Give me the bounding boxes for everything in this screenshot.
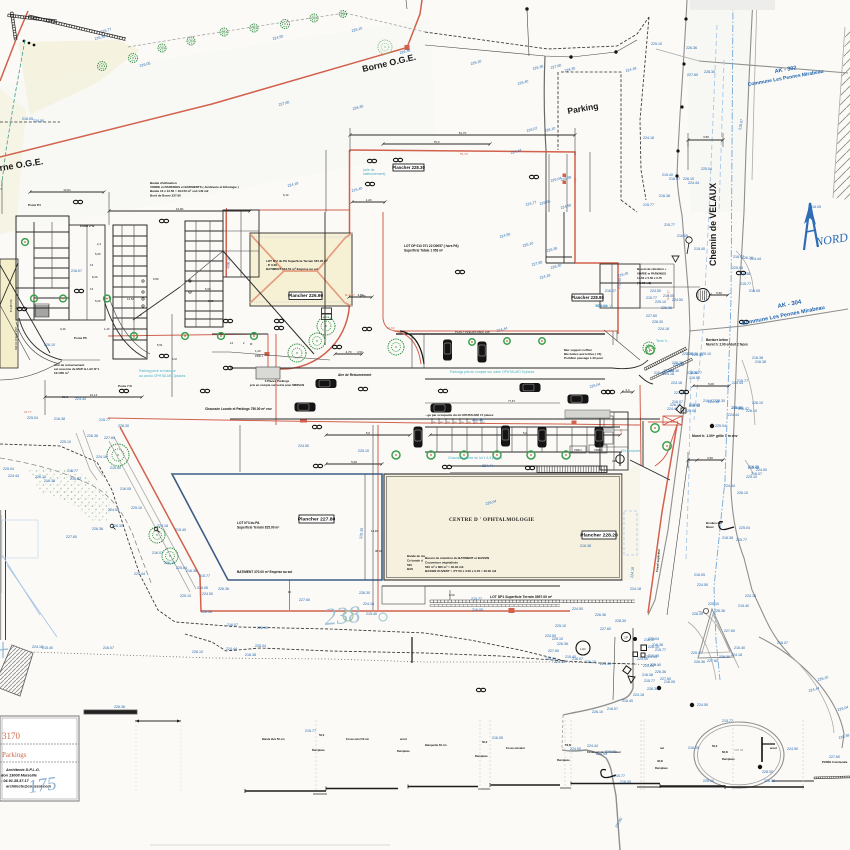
svg-text:238: 238 — [323, 602, 361, 631]
svg-text:216.38: 216.38 — [739, 272, 750, 276]
svg-text:Remplace: Remplace — [722, 757, 735, 761]
svg-text:226.10: 226.10 — [192, 650, 203, 654]
svg-text:224.18: 224.18 — [745, 594, 756, 598]
svg-text:216.07: 216.07 — [777, 641, 788, 645]
svg-text:216.05: 216.05 — [689, 376, 700, 380]
svg-text:Poste P4: Poste P4 — [28, 203, 41, 207]
svg-text:224.18: 224.18 — [157, 524, 168, 528]
svg-text:215.77: 215.77 — [691, 371, 702, 375]
svg-text:225.04: 225.04 — [732, 266, 743, 270]
svg-text:227.60: 227.60 — [687, 73, 698, 77]
svg-text:226.36: 226.36 — [595, 613, 606, 617]
svg-text:Banquette 50 cm: Banquette 50 cm — [425, 743, 447, 747]
svg-text:215.77: 215.77 — [99, 418, 110, 422]
svg-text:215.77: 215.77 — [643, 203, 654, 207]
svg-text:Remplace: Remplace — [312, 748, 325, 752]
svg-text:216.05: 216.05 — [810, 205, 821, 209]
svg-text:Remplace: Remplace — [557, 758, 570, 762]
svg-text:224.44: 224.44 — [134, 572, 145, 576]
svg-text:227.60: 227.60 — [646, 314, 657, 318]
svg-text:BASSIN OUVERT = 3*7.50 x 3.00: BASSIN OUVERT = 3*7.50 x 3.00 x 0.45 = 4… — [425, 569, 497, 573]
svg-text:VOIRIE et PARKINGS: VOIRIE et PARKINGS — [637, 272, 666, 276]
svg-text:Plancher 227.80: Plancher 227.80 — [298, 516, 336, 522]
svg-text:227.60: 227.60 — [724, 629, 735, 633]
svg-text:216.05: 216.05 — [120, 487, 131, 491]
svg-text:500 m² x 800 m³ = 46.00 m3: 500 m² x 800 m³ = 46.00 m3 — [425, 565, 464, 569]
svg-text:216.05: 216.05 — [694, 573, 705, 577]
svg-text:227.60: 227.60 — [600, 627, 611, 631]
svg-text:224.18: 224.18 — [363, 602, 374, 606]
svg-text:224.18: 224.18 — [643, 136, 654, 140]
svg-text:Architecte D.P.L.G.: Architecte D.P.L.G. — [5, 768, 40, 772]
svg-text:Plancher 228.30: Plancher 228.30 — [392, 165, 425, 170]
svg-text:224.50: 224.50 — [697, 583, 708, 587]
svg-text:46,N: 46,N — [657, 759, 663, 763]
svg-text:net: net — [660, 746, 664, 750]
svg-text:51.70: 51.70 — [460, 152, 468, 156]
svg-text:228.30: 228.30 — [704, 70, 715, 74]
svg-text:Superficie Totale 1 053 m²: Superficie Totale 1 053 m² — [404, 248, 443, 252]
svg-text:...ge par occupants du lot OPH: ...ge par occupants du lot OPHTALMO 17 p… — [425, 413, 494, 417]
svg-text:175: 175 — [27, 773, 58, 798]
svg-text:226.10: 226.10 — [596, 304, 607, 308]
svg-text:Portillon passage 1.40 pour: Portillon passage 1.40 pour — [564, 356, 604, 360]
svg-text:Terre V...: Terre V... — [656, 339, 669, 343]
svg-text:216.38: 216.38 — [689, 404, 700, 408]
svg-text:215.77: 215.77 — [471, 597, 482, 601]
svg-text:226.10: 226.10 — [44, 343, 55, 347]
svg-text:Remplace: Remplace — [655, 766, 668, 770]
svg-text:225.04: 225.04 — [685, 409, 696, 413]
svg-text:R+0.67: R+0.67 — [345, 293, 355, 297]
svg-text:224.44: 224.44 — [8, 474, 19, 478]
svg-text:52,0: 52,0 — [319, 733, 325, 737]
svg-text:225.10: 225.10 — [60, 440, 71, 444]
svg-text:Poste P6: Poste P6 — [74, 336, 87, 340]
svg-text:3,50: 3,50 — [703, 135, 709, 139]
svg-text:226.36: 226.36 — [764, 779, 775, 783]
svg-text:PMR 2: PMR 2 — [574, 449, 582, 452]
svg-text:226.36: 226.36 — [661, 306, 672, 310]
svg-text:PMR 1: PMR 1 — [594, 449, 602, 452]
svg-text:225.10: 225.10 — [651, 42, 662, 46]
svg-text:215.77: 215.77 — [614, 774, 625, 778]
svg-text:228.30: 228.30 — [719, 655, 730, 659]
svg-text:225.10: 225.10 — [552, 637, 563, 641]
svg-text:224.44: 224.44 — [587, 744, 598, 748]
svg-text:225.04: 225.04 — [255, 644, 266, 648]
svg-text:216.38: 216.38 — [580, 544, 591, 548]
svg-text:1,40: 1,40 — [539, 430, 545, 434]
svg-text:226.10: 226.10 — [752, 401, 763, 405]
svg-text:Chaussée privée du lot 1 A 3 p: Chaussée privée du lot 1 A 3 pièces — [448, 456, 502, 460]
svg-text:216.07: 216.07 — [152, 551, 163, 555]
svg-text:5,00: 5,00 — [708, 382, 714, 386]
svg-text:216.05: 216.05 — [492, 736, 503, 740]
svg-text:PMR 1: PMR 1 — [255, 354, 263, 358]
svg-text:215.40: 215.40 — [175, 528, 186, 532]
svg-text:226.36: 226.36 — [655, 670, 666, 674]
svg-text:4,50: 4,50 — [360, 294, 366, 298]
svg-text:75,0: 75,0 — [434, 140, 440, 144]
svg-text:224.44: 224.44 — [482, 464, 493, 468]
svg-text:Fossé existant: Fossé existant — [506, 746, 525, 750]
svg-text:226.10: 226.10 — [257, 626, 268, 630]
svg-text:216.05: 216.05 — [620, 780, 631, 784]
svg-text:4,50: 4,50 — [357, 350, 363, 354]
svg-text:224.44: 224.44 — [750, 257, 761, 261]
svg-text:215.77: 215.77 — [664, 223, 675, 227]
svg-text:7.87: 7.87 — [573, 177, 577, 183]
svg-text:215.77: 215.77 — [644, 679, 655, 683]
svg-text:8,20: 8,20 — [92, 275, 98, 279]
svg-text:226.36: 226.36 — [557, 642, 568, 646]
svg-text:224.50: 224.50 — [108, 508, 119, 512]
svg-text:KN Bordures...: KN Bordures... — [621, 449, 643, 453]
svg-text:216.07: 216.07 — [607, 707, 618, 711]
svg-text:224.44: 224.44 — [667, 407, 678, 411]
svg-text:Parkings: Parkings — [2, 751, 27, 759]
svg-text:226.36: 226.36 — [87, 434, 98, 438]
svg-text:Ce bande d: Ce bande d — [407, 558, 423, 562]
svg-text:5,0: 5,0 — [523, 431, 528, 435]
svg-text:228.30: 228.30 — [359, 591, 370, 595]
svg-text:216.05: 216.05 — [197, 586, 208, 590]
svg-text:51.63: 51.63 — [387, 326, 395, 330]
svg-text:216.07: 216.07 — [71, 269, 82, 273]
svg-text:227.60: 227.60 — [548, 649, 559, 653]
svg-text:PLAN TOPEURS 88cm 228: PLAN TOPEURS 88cm 228 — [455, 330, 490, 334]
svg-text:216.07: 216.07 — [669, 177, 680, 181]
svg-text:Bord de Borne 227.60: Bord de Borne 227.60 — [150, 193, 181, 197]
svg-text:226.10: 226.10 — [746, 409, 757, 413]
svg-text:226.36: 226.36 — [714, 609, 725, 613]
svg-text:225.04: 225.04 — [648, 637, 659, 641]
svg-text:BATIMENT 134.51 m² Emprise au: BATIMENT 134.51 m² Emprise au sol — [266, 267, 318, 271]
svg-text:227.60: 227.60 — [66, 535, 77, 539]
svg-text:4,70: 4,70 — [346, 350, 352, 354]
svg-text:50,0: 50,0 — [712, 744, 718, 748]
svg-text:224.50: 224.50 — [697, 703, 708, 707]
svg-text:224.44: 224.44 — [75, 397, 86, 401]
svg-text:225.10: 225.10 — [746, 475, 757, 479]
svg-text:17.01: 17.01 — [226, 261, 230, 269]
svg-text:14.50 x 5.50 x 0.75: 14.50 x 5.50 x 0.75 — [637, 276, 662, 280]
svg-text:225.04: 225.04 — [3, 467, 14, 471]
svg-text:224.50: 224.50 — [756, 468, 767, 472]
svg-text:50,0: 50,0 — [482, 740, 488, 744]
svg-text:5,0: 5,0 — [366, 431, 371, 435]
svg-text:216.07: 216.07 — [103, 646, 114, 650]
svg-text:216.38: 216.38 — [652, 643, 663, 647]
svg-text:216.38: 216.38 — [642, 673, 653, 677]
svg-text:5,50: 5,50 — [716, 291, 722, 295]
svg-text:216.38: 216.38 — [44, 479, 55, 483]
svg-text:216.07: 216.07 — [605, 289, 616, 293]
svg-text:215.77: 215.77 — [655, 648, 666, 652]
svg-text:224.50: 224.50 — [672, 298, 683, 302]
svg-text:228.30: 228.30 — [118, 424, 129, 428]
svg-text:Plancher 228.80: Plancher 228.80 — [571, 295, 604, 300]
svg-text:215.40: 215.40 — [694, 247, 705, 251]
svg-text:215.77: 215.77 — [736, 538, 747, 542]
svg-text:LU1: LU1 — [580, 647, 586, 651]
svg-text:216.07: 216.07 — [70, 477, 81, 481]
svg-text:226.36: 226.36 — [114, 705, 125, 709]
svg-text:224.44: 224.44 — [724, 484, 735, 488]
svg-text:accot: accot — [770, 746, 777, 750]
svg-text:Parking privé en banque: Parking privé en banque — [139, 369, 176, 373]
svg-text:225.10: 225.10 — [555, 624, 566, 628]
svg-text:13: 13 — [90, 263, 94, 267]
svg-text:224.18: 224.18 — [731, 653, 742, 657]
svg-text:227.60: 227.60 — [104, 436, 115, 440]
svg-text:BATIMENT 370.00 m² Emprise au: BATIMENT 370.00 m² Emprise au sol — [237, 570, 292, 574]
svg-text:224.50: 224.50 — [298, 444, 309, 448]
svg-text:1,40: 1,40 — [104, 327, 110, 331]
svg-text:BAS: BAS — [407, 567, 413, 571]
svg-text:stationnement): stationnement) — [363, 172, 385, 176]
svg-text:(41.00 m3): (41.00 m3) — [637, 281, 651, 285]
svg-text:3,4: 3,4 — [625, 388, 630, 392]
svg-text:225.04: 225.04 — [27, 416, 38, 420]
svg-text:225.10: 225.10 — [700, 352, 711, 356]
svg-text:Parkings pris en compte sur vo: Parkings pris en compte sur voirie OPHTA… — [450, 370, 535, 374]
svg-text:R+4.37: R+4.37 — [666, 290, 670, 300]
svg-text:10: 10 — [288, 590, 292, 594]
svg-text:pris en compte sur voirie pour: pris en compte sur voirie pour MINIVAN — [250, 383, 304, 387]
svg-text:15.77: 15.77 — [24, 410, 32, 414]
svg-text:226.36: 226.36 — [92, 527, 103, 531]
svg-text:216.38: 216.38 — [605, 750, 616, 754]
svg-text:accot: accot — [400, 737, 407, 741]
svg-text:2,4: 2,4 — [97, 242, 101, 246]
svg-text:225.10: 225.10 — [655, 300, 666, 304]
svg-text:LOT DP1 Superficie Terrain 3: LOT DP1 Superficie Terrain 3597.00 m² — [490, 595, 553, 599]
svg-text:5,00: 5,00 — [95, 252, 101, 256]
svg-text:225.10: 225.10 — [131, 506, 142, 510]
svg-text:14: 14 — [230, 341, 234, 345]
svg-text:13: 13 — [90, 287, 94, 291]
svg-text:224.44: 224.44 — [226, 647, 237, 651]
svg-text:224.18: 224.18 — [671, 381, 682, 385]
svg-text:215.77: 215.77 — [305, 729, 316, 733]
svg-text:Bande de rés: Bande de rés — [407, 554, 426, 558]
svg-text:227.60: 227.60 — [299, 598, 310, 602]
svg-text:5,00: 5,00 — [205, 287, 211, 291]
svg-text:215.40: 215.40 — [42, 646, 53, 650]
svg-text:215.40: 215.40 — [622, 699, 633, 703]
svg-text:224.50: 224.50 — [33, 119, 44, 123]
svg-text:Plancher 228.20: Plancher 228.20 — [580, 532, 618, 538]
svg-text:1P: 1P — [624, 636, 628, 640]
svg-text:au condo OPHTALMO 2places: au condo OPHTALMO 2places — [139, 374, 186, 378]
svg-text:CENTRE D ' OPHTALMOLOGIE: CENTRE D ' OPHTALMOLOGIE — [449, 517, 535, 523]
svg-text:36,32: 36,32 — [375, 549, 382, 553]
svg-text:216.38: 216.38 — [659, 194, 670, 198]
svg-text:226.36: 226.36 — [218, 587, 229, 591]
svg-text:226.10: 226.10 — [164, 561, 175, 565]
svg-text:227.60: 227.60 — [674, 391, 685, 395]
svg-text:Bassin de rétention du BATIME: Bassin de rétention du BATIMENT et BASSI… — [425, 556, 489, 560]
svg-text:216.05: 216.05 — [472, 608, 483, 612]
svg-text:228.30: 228.30 — [647, 687, 658, 691]
svg-text:Poste 2 %: Poste 2 % — [80, 224, 95, 228]
svg-text:226.36: 226.36 — [201, 610, 212, 614]
svg-text:224.18: 224.18 — [658, 327, 669, 331]
svg-text:215.40: 215.40 — [734, 646, 745, 650]
svg-text:500: 500 — [407, 563, 412, 567]
svg-text:Bande élév 50 cm: Bande élév 50 cm — [262, 737, 285, 741]
svg-text:21,N: 21,N — [62, 395, 68, 399]
svg-text:225.10: 225.10 — [358, 449, 369, 453]
svg-text:1,20: 1,20 — [255, 349, 261, 353]
svg-text:215.77: 215.77 — [737, 379, 748, 383]
svg-text:228.30: 228.30 — [762, 770, 773, 774]
svg-text:6,13: 6,13 — [283, 193, 289, 197]
svg-text:224.18: 224.18 — [96, 455, 107, 459]
svg-text:215.77: 215.77 — [722, 719, 733, 723]
svg-text:6,00: 6,00 — [449, 593, 455, 597]
svg-text:225.10: 225.10 — [708, 602, 719, 606]
svg-text:228.30: 228.30 — [615, 619, 626, 623]
svg-text:226.10: 226.10 — [737, 491, 748, 495]
svg-text:225.10: 225.10 — [650, 663, 661, 667]
svg-text:5,00: 5,00 — [95, 299, 101, 303]
svg-text:225.10: 225.10 — [691, 651, 702, 655]
svg-text:Muret h: 2.00 enduit 2 faces: Muret h: 2.00 enduit 2 faces — [706, 342, 748, 346]
svg-text:0,40: 0,40 — [60, 327, 66, 331]
svg-text:224.50: 224.50 — [787, 747, 798, 751]
svg-text:13,56: 13,56 — [127, 297, 134, 301]
svg-text:228.30: 228.30 — [692, 612, 703, 616]
svg-text:224.50: 224.50 — [572, 607, 583, 611]
svg-text:225.04: 225.04 — [715, 424, 726, 428]
svg-text:226.36: 226.36 — [687, 352, 698, 356]
svg-text:Chaussée Lourde et Parkings 7: Chaussée Lourde et Parkings 750.00 m² en… — [205, 407, 272, 411]
svg-text:Fossé exist 50 cm: Fossé exist 50 cm — [346, 737, 370, 741]
svg-text:226.36: 226.36 — [686, 46, 697, 50]
svg-text:227.60: 227.60 — [673, 363, 684, 367]
svg-text:224.18: 224.18 — [708, 400, 719, 404]
svg-text:Remplace: Remplace — [397, 749, 410, 753]
svg-text:13,61: 13,61 — [63, 188, 71, 192]
svg-text:8.00: 8.00 — [619, 429, 623, 435]
svg-text:215.77: 215.77 — [199, 574, 210, 578]
svg-text:5,00: 5,00 — [208, 299, 214, 303]
svg-text:226.36: 226.36 — [694, 660, 705, 664]
svg-text:1,20: 1,20 — [366, 198, 372, 202]
svg-text:225.10: 225.10 — [703, 779, 714, 783]
svg-text:3170: 3170 — [2, 731, 21, 741]
svg-text:224.18: 224.18 — [554, 660, 565, 664]
svg-text:225.10: 225.10 — [180, 594, 191, 598]
svg-text:216.05: 216.05 — [749, 289, 760, 293]
svg-text:Couverture végétalisée: Couverture végétalisée — [425, 560, 458, 564]
svg-text:6,80: 6,80 — [153, 277, 159, 281]
svg-text:224.18: 224.18 — [633, 693, 644, 697]
svg-text:216.05: 216.05 — [677, 234, 688, 238]
svg-text:3,50: 3,50 — [707, 456, 713, 460]
svg-text:215.40: 215.40 — [654, 371, 665, 375]
svg-text:5,00: 5,00 — [351, 460, 357, 464]
svg-text:226.10: 226.10 — [592, 710, 603, 714]
svg-text:Bassin de rétention +: Bassin de rétention + — [637, 267, 667, 271]
svg-text:216.07: 216.07 — [572, 657, 583, 661]
svg-text:66,N: 66,N — [722, 750, 728, 754]
svg-text:215.77: 215.77 — [740, 282, 751, 286]
svg-text:228.30: 228.30 — [112, 524, 123, 528]
svg-text:Plancher 226.90: Plancher 226.90 — [288, 293, 324, 298]
svg-text:Poste 7 N: Poste 7 N — [118, 384, 132, 388]
svg-text:224.50: 224.50 — [202, 592, 213, 596]
svg-text:Aire de Retournement: Aire de Retournement — [338, 373, 372, 377]
svg-text:215.40: 215.40 — [110, 466, 121, 470]
svg-text:51,70: 51,70 — [459, 131, 467, 135]
svg-text:227.60: 227.60 — [660, 677, 671, 681]
svg-text:21,14: 21,14 — [90, 393, 98, 397]
svg-text:227.60: 227.60 — [707, 659, 718, 663]
svg-text:Remplace: Remplace — [475, 754, 488, 758]
svg-text:: 04.91.35.37.17: : 04.91.35.37.17 — [1, 779, 30, 783]
svg-text:224.44: 224.44 — [688, 181, 699, 185]
svg-text:13,90: 13,90 — [176, 207, 184, 211]
svg-text:224.50: 224.50 — [637, 657, 648, 661]
svg-text:333 DK Châssis MSP: 333 DK Châssis MSP — [15, 327, 18, 350]
svg-text:216.05: 216.05 — [688, 746, 699, 750]
svg-text:216.05: 216.05 — [22, 117, 33, 121]
svg-text:Muret h: 1.00+ grille 1 m env: Muret h: 1.00+ grille 1 m env — [692, 434, 738, 438]
svg-text:228.30: 228.30 — [652, 320, 663, 324]
svg-text:77,67: 77,67 — [508, 399, 515, 403]
svg-text:216.38: 216.38 — [472, 418, 483, 422]
svg-text:216.38: 216.38 — [755, 360, 766, 364]
svg-text:216.38: 216.38 — [722, 536, 733, 540]
svg-text:215.40: 215.40 — [738, 604, 749, 608]
svg-text:216.38: 216.38 — [186, 569, 197, 573]
svg-text:224.18: 224.18 — [630, 587, 641, 591]
svg-text:215.40: 215.40 — [366, 612, 377, 616]
svg-text:Superficie Terrain 815.00 m²: Superficie Terrain 815.00 m² — [237, 525, 279, 529]
svg-text:5,51: 5,51 — [157, 343, 163, 347]
svg-text:10>350 m²: 10>350 m² — [54, 371, 69, 375]
svg-text:225.04: 225.04 — [739, 526, 750, 530]
svg-text:228.98: 228.98 — [734, 748, 744, 752]
svg-text:6,M: 6,M — [172, 357, 177, 361]
svg-text:14,93: 14,93 — [371, 529, 378, 533]
svg-text:224.50: 224.50 — [570, 747, 581, 751]
svg-text:Muret: Muret — [706, 525, 714, 529]
svg-text:216.07: 216.07 — [227, 623, 238, 627]
svg-text:B 3,48 CM: B 3,48 CM — [9, 300, 13, 312]
svg-text:Chemin de VELAUX: Chemin de VELAUX — [708, 183, 718, 266]
svg-text:216.38: 216.38 — [245, 653, 256, 657]
svg-text:226.10: 226.10 — [585, 660, 596, 664]
svg-text:216.05: 216.05 — [648, 654, 659, 658]
svg-text:215.77: 215.77 — [67, 469, 78, 473]
svg-text:225.04: 225.04 — [701, 167, 712, 171]
svg-text:224.50: 224.50 — [650, 289, 661, 293]
svg-text:216.38: 216.38 — [54, 417, 65, 421]
svg-text:224.44: 224.44 — [728, 413, 739, 417]
svg-text:227.60: 227.60 — [829, 755, 840, 759]
svg-text:224.44: 224.44 — [600, 662, 611, 666]
